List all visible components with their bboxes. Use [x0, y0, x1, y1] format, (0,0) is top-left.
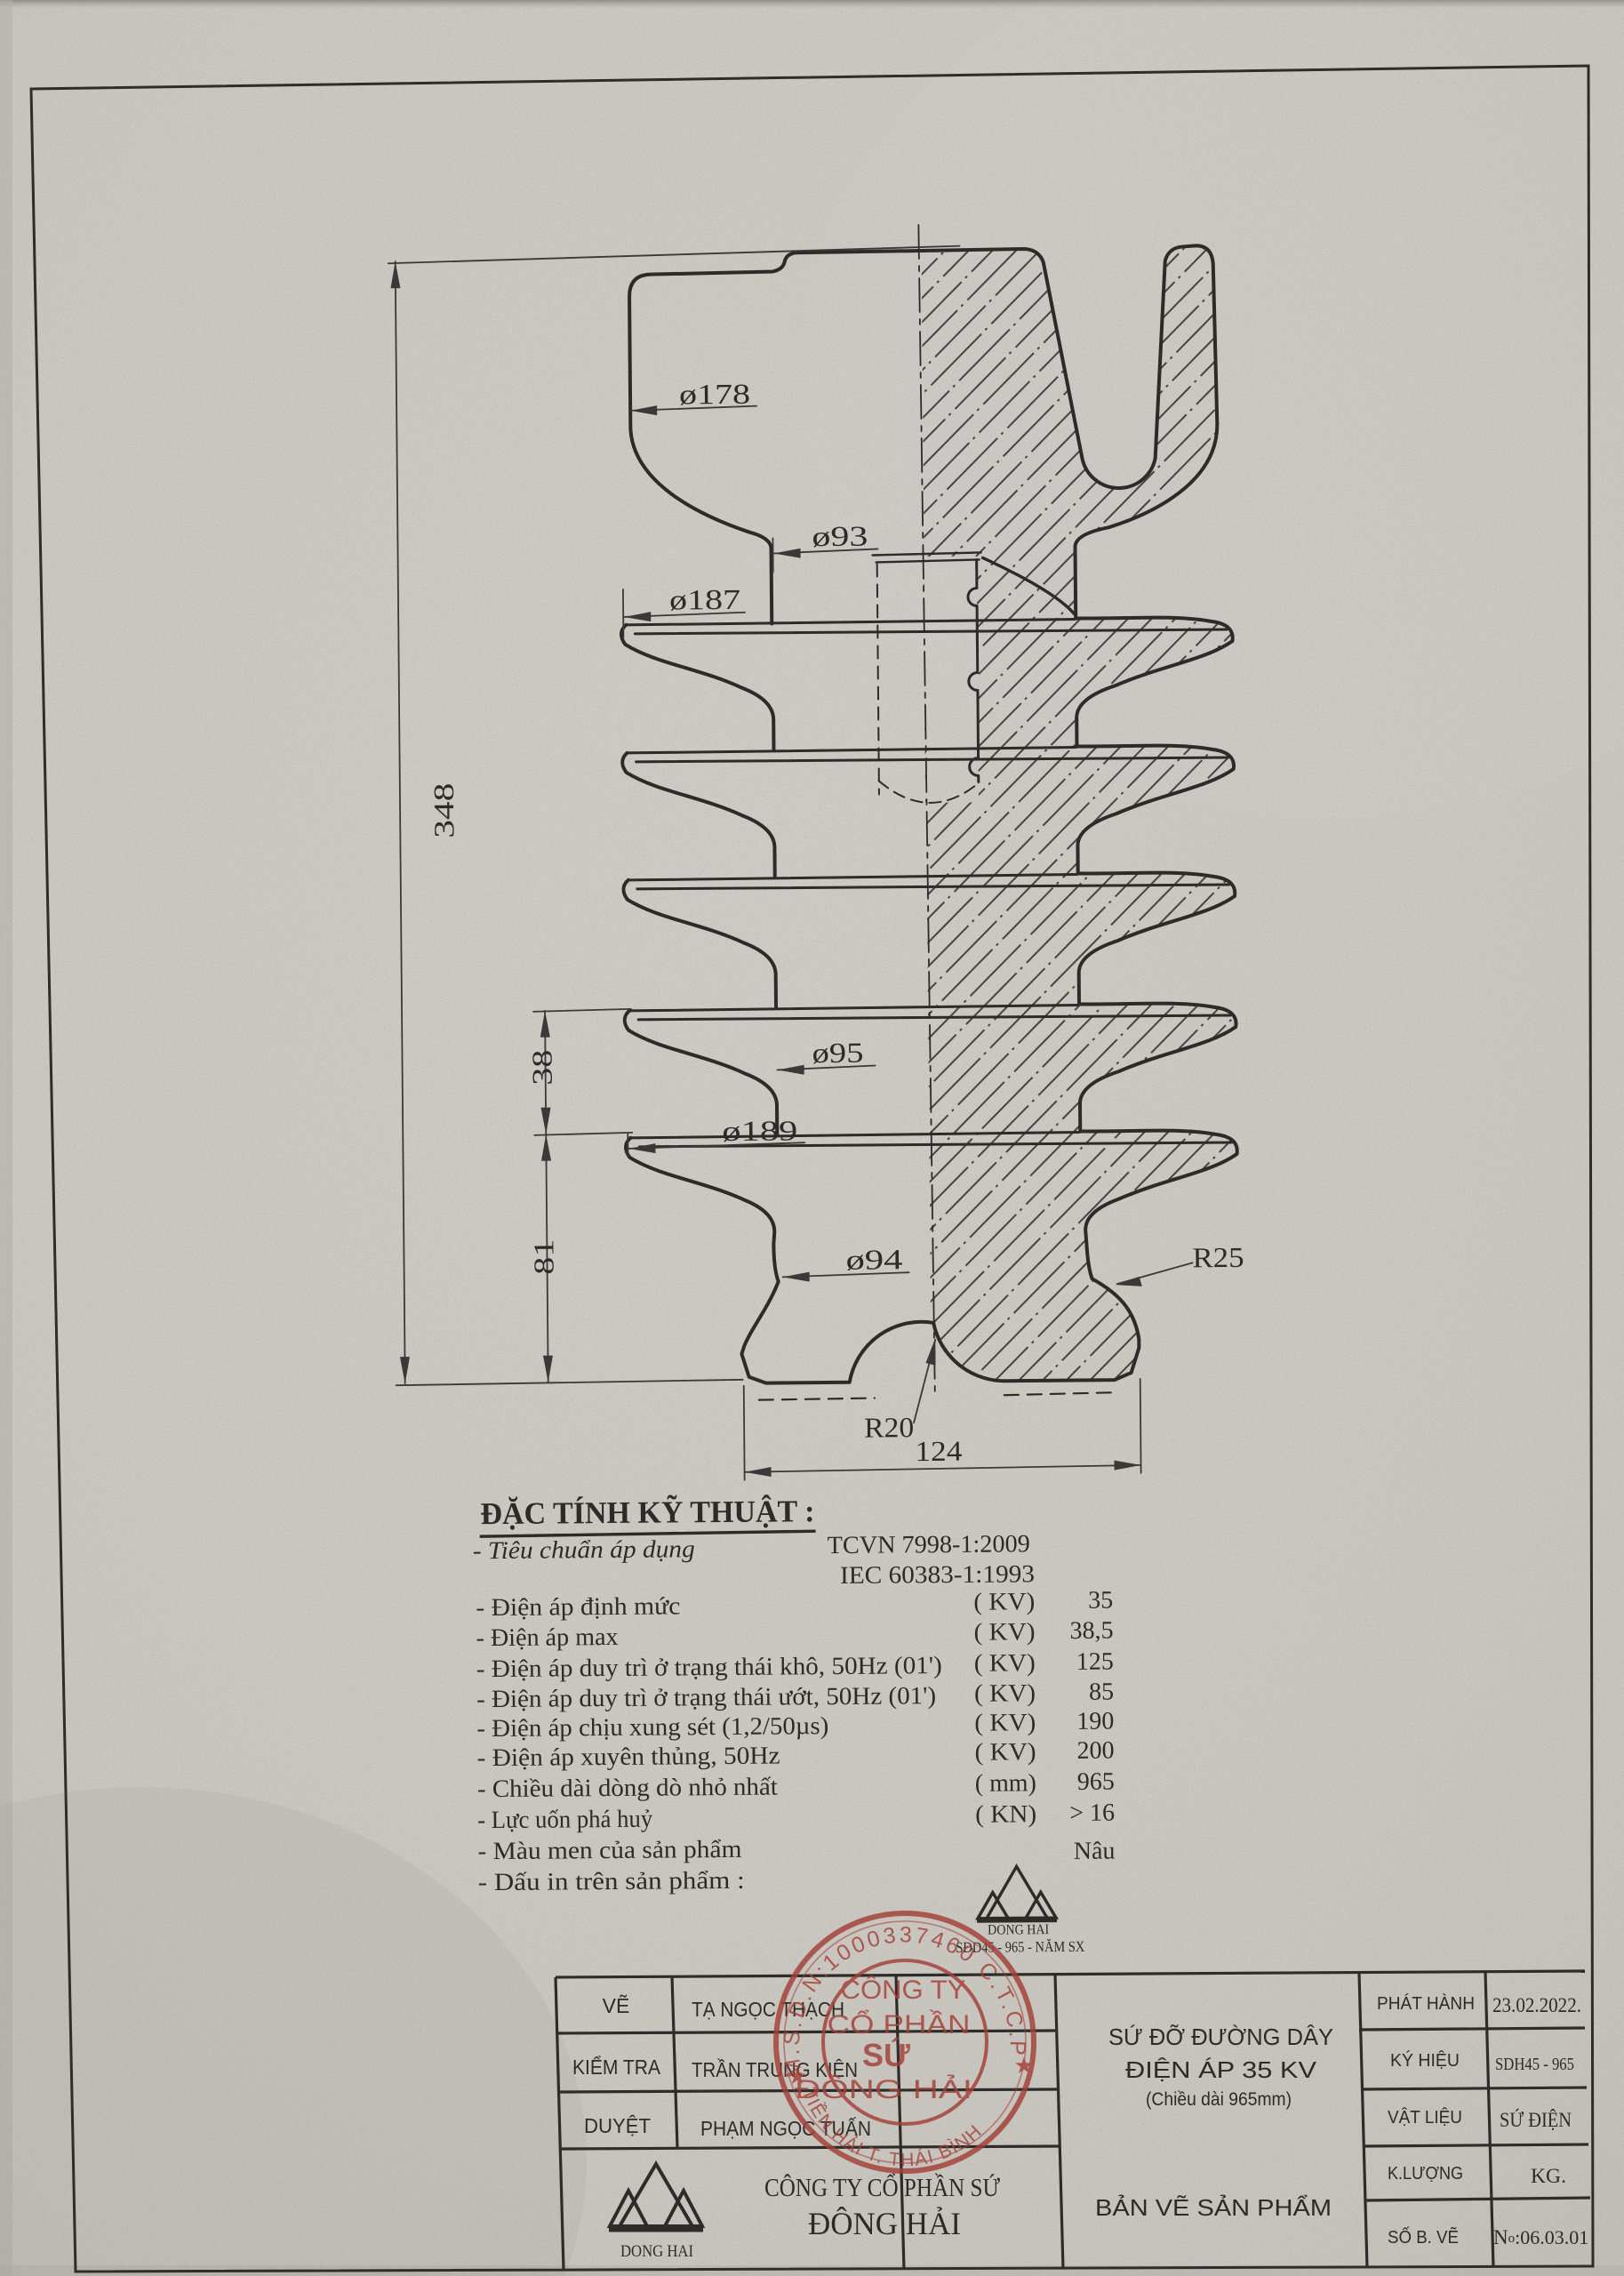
svg-text:ø93: ø93 — [812, 520, 868, 553]
svg-text:- Điện áp xuyên thủng, 50Hz: - Điện áp xuyên thủng, 50Hz — [476, 1743, 780, 1773]
svg-text:CÔNG TY: CÔNG TY — [841, 1975, 966, 2005]
svg-text:965: 965 — [1077, 1768, 1115, 1796]
svg-text:KG.: KG. — [1531, 2165, 1566, 2187]
svg-text:TẠ NGỌC THẠCH: TẠ NGỌC THẠCH — [692, 1998, 844, 2021]
svg-text:38: 38 — [525, 1050, 557, 1086]
svg-text:BẢN VẼ SẢN PHẨM: BẢN VẼ SẢN PHẨM — [1095, 2194, 1332, 2221]
svg-text:ĐÔNG HẢI: ĐÔNG HẢI — [795, 2074, 972, 2104]
svg-text:85: 85 — [1089, 1679, 1114, 1706]
svg-text:- Điện áp duy trì ở trạng thái: - Điện áp duy trì ở trạng thái khô, 50Hz… — [476, 1652, 942, 1683]
svg-text:DONG HAI: DONG HAI — [620, 2242, 693, 2261]
svg-text:( KV): ( KV) — [974, 1679, 1036, 1708]
svg-text:- Điện áp max: - Điện áp max — [476, 1623, 618, 1652]
svg-text:ĐÔNG HẢI: ĐÔNG HẢI — [808, 2206, 961, 2241]
svg-text:200: 200 — [1076, 1737, 1114, 1765]
svg-text:(Chiều dài 965mm): (Chiều dài 965mm) — [1146, 2089, 1292, 2110]
svg-text:190: 190 — [1076, 1708, 1114, 1735]
svg-text:ĐIỆN ÁP 35 KV: ĐIỆN ÁP 35 KV — [1125, 2056, 1317, 2083]
svg-text:- Điện áp định mức: - Điện áp định mức — [476, 1592, 680, 1622]
svg-text:SỨ: SỨ — [862, 2036, 910, 2073]
svg-text:K.LƯỢNG: K.LƯỢNG — [1388, 2164, 1463, 2184]
svg-text:35: 35 — [1088, 1587, 1113, 1615]
svg-text:SỐ B. VẼ: SỐ B. VẼ — [1388, 2226, 1459, 2248]
svg-text:DUYỆT: DUYỆT — [584, 2114, 651, 2137]
svg-text:> 16: > 16 — [1069, 1799, 1115, 1827]
svg-text:- Điện áp duy trì ở trạng thái: - Điện áp duy trì ở trạng thái ướt, 50Hz… — [476, 1682, 936, 1713]
svg-text:DONG HAI: DONG HAI — [988, 1922, 1049, 1938]
svg-text:TCVN 7998-1:2009: TCVN 7998-1:2009 — [828, 1530, 1030, 1559]
svg-text:( KV): ( KV) — [973, 1618, 1035, 1647]
svg-text:KIỂM TRA: KIỂM TRA — [572, 2055, 661, 2079]
svg-text:CỔ PHẦN: CỔ PHẦN — [828, 2009, 971, 2040]
svg-text:( KV): ( KV) — [973, 1588, 1035, 1616]
svg-text:PHÁT HÀNH: PHÁT HÀNH — [1377, 1993, 1475, 2014]
svg-text:ĐẶC TÍNH KỸ THUẬT :: ĐẶC TÍNH KỸ THUẬT : — [480, 1493, 814, 1531]
svg-text:Nâu: Nâu — [1074, 1838, 1116, 1865]
svg-text:ø189: ø189 — [722, 1114, 797, 1147]
svg-text:SỨ ĐIỆN: SỨ ĐIỆN — [1500, 2108, 1572, 2131]
svg-text:ø94: ø94 — [845, 1243, 902, 1276]
svg-text:348: 348 — [428, 783, 460, 838]
svg-text:ø95: ø95 — [812, 1037, 863, 1070]
svg-text:124: 124 — [915, 1435, 962, 1467]
svg-text:- Lực uốn phá huỷ: - Lực uốn phá huỷ — [477, 1806, 652, 1835]
svg-text:VẼ: VẼ — [603, 1994, 630, 2017]
svg-text:IEC 60383-1:1993: IEC 60383-1:1993 — [840, 1560, 1035, 1590]
svg-text:125: 125 — [1076, 1648, 1114, 1676]
svg-text:No:06.03.01: No:06.03.01 — [1493, 2226, 1588, 2248]
svg-text:( KV): ( KV) — [974, 1738, 1036, 1767]
svg-text:SDH45 - 965: SDH45 - 965 — [1495, 2055, 1574, 2074]
svg-text:( KV): ( KV) — [974, 1709, 1036, 1737]
svg-text:( KN): ( KN) — [975, 1800, 1036, 1829]
svg-text:VẬT LIỆU: VẬT LIỆU — [1388, 2107, 1462, 2128]
svg-text:R20: R20 — [864, 1411, 914, 1443]
svg-text:KÝ HIỆU: KÝ HIỆU — [1390, 2050, 1460, 2071]
svg-text:- Chiều dài dòng dò nhỏ nhất: - Chiều dài dòng dò nhỏ nhất — [477, 1774, 778, 1804]
svg-text:ø187: ø187 — [669, 583, 740, 616]
svg-text:( KV): ( KV) — [974, 1649, 1036, 1678]
svg-text:- Dấu in trên sản phẩm :: - Dấu in trên sản phẩm : — [478, 1867, 745, 1896]
svg-text:ø178: ø178 — [679, 378, 750, 411]
svg-text:- Điện áp chịu xung sét (1,2/5: - Điện áp chịu xung sét (1,2/50µs) — [476, 1712, 828, 1743]
svg-text:- Màu men của sản phẩm: - Màu men của sản phẩm — [477, 1836, 741, 1865]
svg-text:CÔNG TY CỔ PHẦN SỨ: CÔNG TY CỔ PHẦN SỨ — [764, 2172, 1000, 2202]
svg-text:★: ★ — [1013, 2053, 1034, 2079]
svg-text:( mm): ( mm) — [975, 1769, 1036, 1798]
svg-text:SỨ ĐỠ ĐƯỜNG DÂY: SỨ ĐỠ ĐƯỜNG DÂY — [1108, 2024, 1333, 2050]
svg-text:R25: R25 — [1192, 1241, 1244, 1274]
svg-text:38,5: 38,5 — [1069, 1617, 1113, 1645]
svg-text:- Tiêu chuẩn áp dụng: - Tiêu chuẩn áp dụng — [473, 1535, 695, 1565]
svg-text:23.02.2022.: 23.02.2022. — [1492, 1994, 1581, 2016]
svg-text:81: 81 — [527, 1239, 559, 1275]
